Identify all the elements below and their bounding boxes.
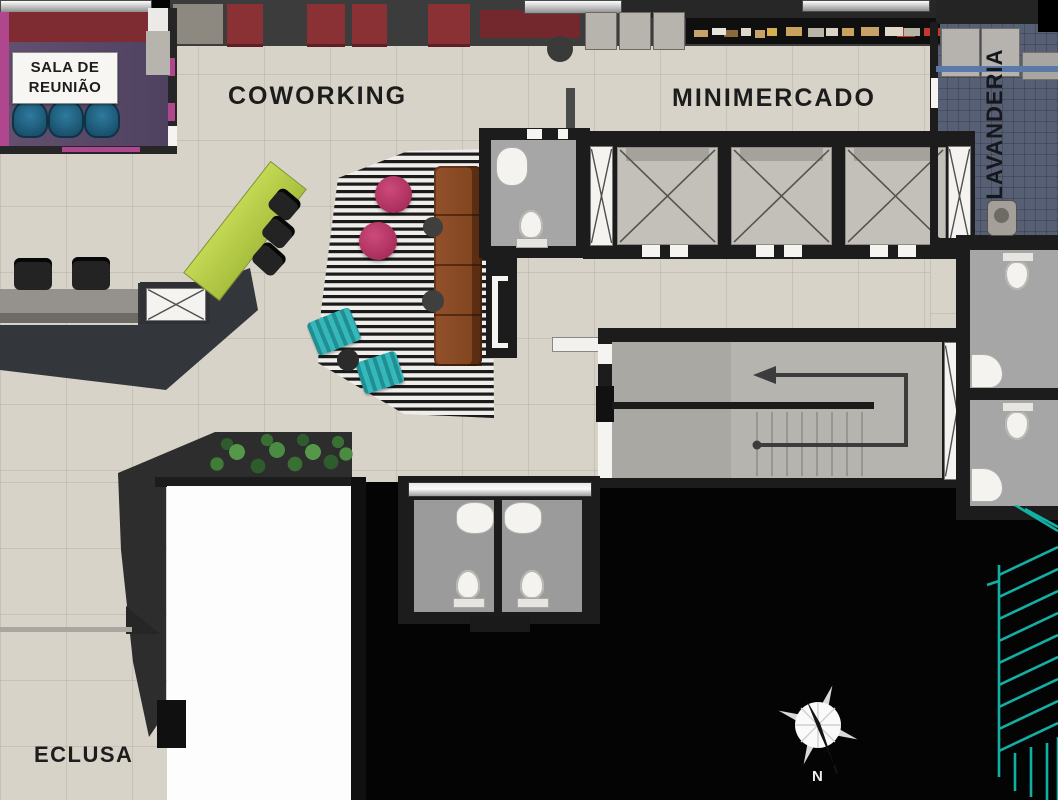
cabinet-white bbox=[148, 8, 168, 32]
door-opening bbox=[931, 78, 938, 108]
elevator-door bbox=[870, 245, 888, 257]
market-products bbox=[741, 28, 751, 36]
concrete-column bbox=[173, 4, 223, 44]
elevator-x-shaft-icon bbox=[590, 146, 613, 246]
tv-bracket bbox=[492, 276, 508, 281]
elevator-door bbox=[642, 245, 660, 257]
red-cabinet bbox=[352, 4, 387, 47]
coworking-label: COWORKING bbox=[228, 82, 407, 111]
toilet-icon bbox=[453, 570, 483, 608]
market-products bbox=[904, 28, 920, 36]
elevator-door bbox=[784, 245, 802, 257]
kitchen-counter bbox=[480, 10, 580, 38]
sink-icon bbox=[504, 502, 542, 534]
meeting-chair bbox=[84, 100, 120, 138]
market-table bbox=[802, 0, 930, 12]
elevator-cab bbox=[617, 147, 718, 245]
leather-sofa bbox=[434, 166, 482, 366]
elevator-x-shaft-icon bbox=[948, 146, 971, 246]
entry-step bbox=[470, 616, 530, 632]
meeting-room-label-line1: SALA DE bbox=[13, 58, 117, 78]
wireframe-stairs-icon bbox=[985, 505, 1058, 800]
toilet-icon bbox=[1002, 252, 1032, 290]
round-coffee-table bbox=[337, 349, 359, 371]
bar-chair bbox=[619, 12, 651, 50]
red-cabinet bbox=[307, 4, 345, 47]
elevator-cab bbox=[731, 147, 832, 245]
door-opening bbox=[168, 126, 177, 146]
void-opening bbox=[167, 486, 351, 800]
lavanderia-label: LAVANDERIA bbox=[982, 34, 1010, 214]
meeting-chair bbox=[48, 100, 84, 138]
market-shelf bbox=[686, 18, 940, 44]
bathroom-wall bbox=[479, 128, 491, 258]
cabinet-gray bbox=[146, 31, 170, 75]
floor-plan: SALA DE REUNIÃO COWORKING MINIMERCADO bbox=[0, 0, 1058, 800]
side-table bbox=[422, 290, 444, 312]
meeting-room-label: SALA DE REUNIÃO bbox=[12, 52, 118, 104]
meeting-room-label-line2: REUNIÃO bbox=[13, 78, 117, 98]
desk-chair bbox=[72, 257, 110, 290]
eclusa-label: ECLUSA bbox=[34, 742, 133, 768]
side-table bbox=[423, 217, 443, 237]
pink-pouf bbox=[375, 176, 412, 213]
elevator-door bbox=[756, 245, 774, 257]
elevator-x-shaft-icon bbox=[146, 288, 206, 321]
laundry-wall bbox=[930, 238, 1058, 248]
market-products bbox=[826, 28, 838, 36]
pink-pouf bbox=[359, 222, 397, 260]
sink-icon bbox=[496, 147, 528, 186]
stair-direction-arrow-icon bbox=[598, 328, 975, 488]
tv-icon bbox=[492, 276, 498, 348]
pink-wall bbox=[0, 12, 9, 148]
elevator-door bbox=[670, 245, 688, 257]
pink-wall-accent bbox=[168, 103, 175, 121]
toilet-icon bbox=[517, 570, 547, 608]
elevator-door bbox=[898, 245, 916, 257]
sink-icon bbox=[456, 502, 494, 534]
bar-chair bbox=[585, 12, 617, 50]
minimercado-label: MINIMERCADO bbox=[672, 84, 876, 113]
market-products bbox=[694, 30, 708, 37]
toilet-icon bbox=[1002, 402, 1032, 440]
round-stool bbox=[547, 36, 573, 62]
door-opening bbox=[558, 129, 568, 139]
door-threshold bbox=[0, 627, 132, 632]
void-wall bbox=[351, 477, 366, 800]
credenza bbox=[8, 12, 148, 42]
wall-tab bbox=[157, 700, 186, 748]
meeting-chair bbox=[12, 100, 48, 138]
red-cabinet bbox=[428, 4, 470, 47]
red-cabinet bbox=[227, 4, 263, 47]
door-opening bbox=[527, 129, 542, 139]
tv-bracket bbox=[492, 343, 508, 348]
desk-chair bbox=[14, 258, 52, 290]
toilet-icon bbox=[516, 210, 546, 248]
market-products bbox=[861, 27, 879, 36]
corner-wall bbox=[1038, 0, 1058, 32]
market-products bbox=[786, 27, 802, 36]
north-label: N bbox=[812, 768, 823, 785]
pink-wall-accent bbox=[62, 147, 140, 152]
laundry-wall bbox=[930, 22, 938, 240]
corridor-floor bbox=[930, 247, 958, 330]
hedge-plant-icon bbox=[203, 426, 355, 486]
coworking-counter bbox=[0, 289, 138, 323]
bar-chair bbox=[653, 12, 685, 50]
mirror-counter bbox=[408, 482, 592, 497]
